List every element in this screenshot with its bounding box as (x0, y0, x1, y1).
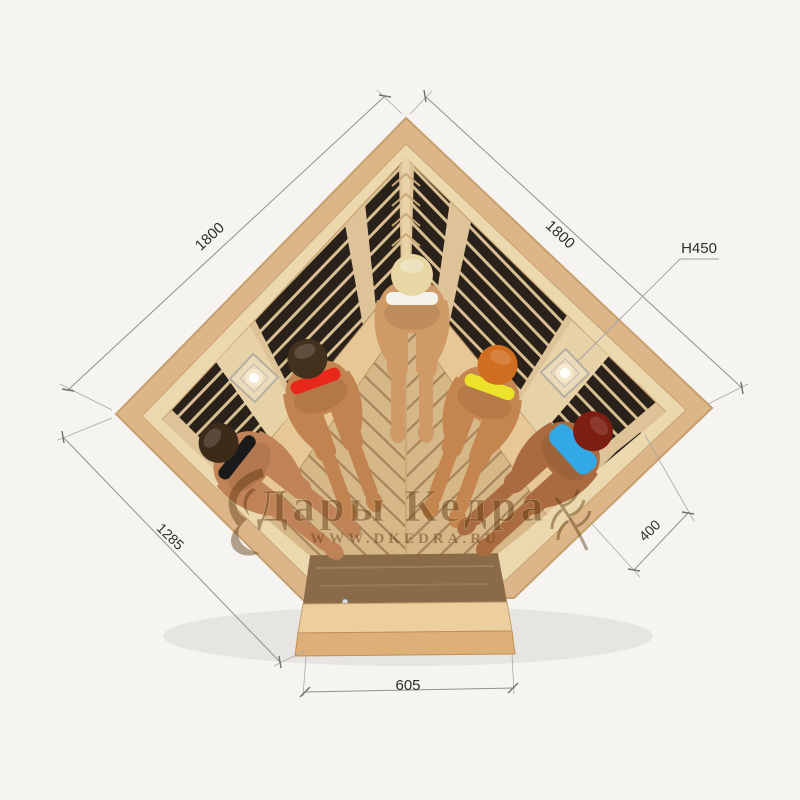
sauna-top-view-render: Дары Кедра WWW.DKEDRA.RU (0, 0, 800, 800)
render-canvas: Дары Кедра WWW.DKEDRA.RU (0, 0, 800, 800)
lamp-glow (560, 368, 570, 378)
watermark-brand-text: Дары Кедра (257, 480, 548, 531)
dimension-label-h450: H450 (681, 240, 717, 257)
watermark-url-text: WWW.DKEDRA.RU (310, 531, 500, 547)
dimension-label-605: 605 (395, 677, 420, 694)
door-step (295, 602, 515, 656)
lamp-glow (249, 373, 259, 383)
